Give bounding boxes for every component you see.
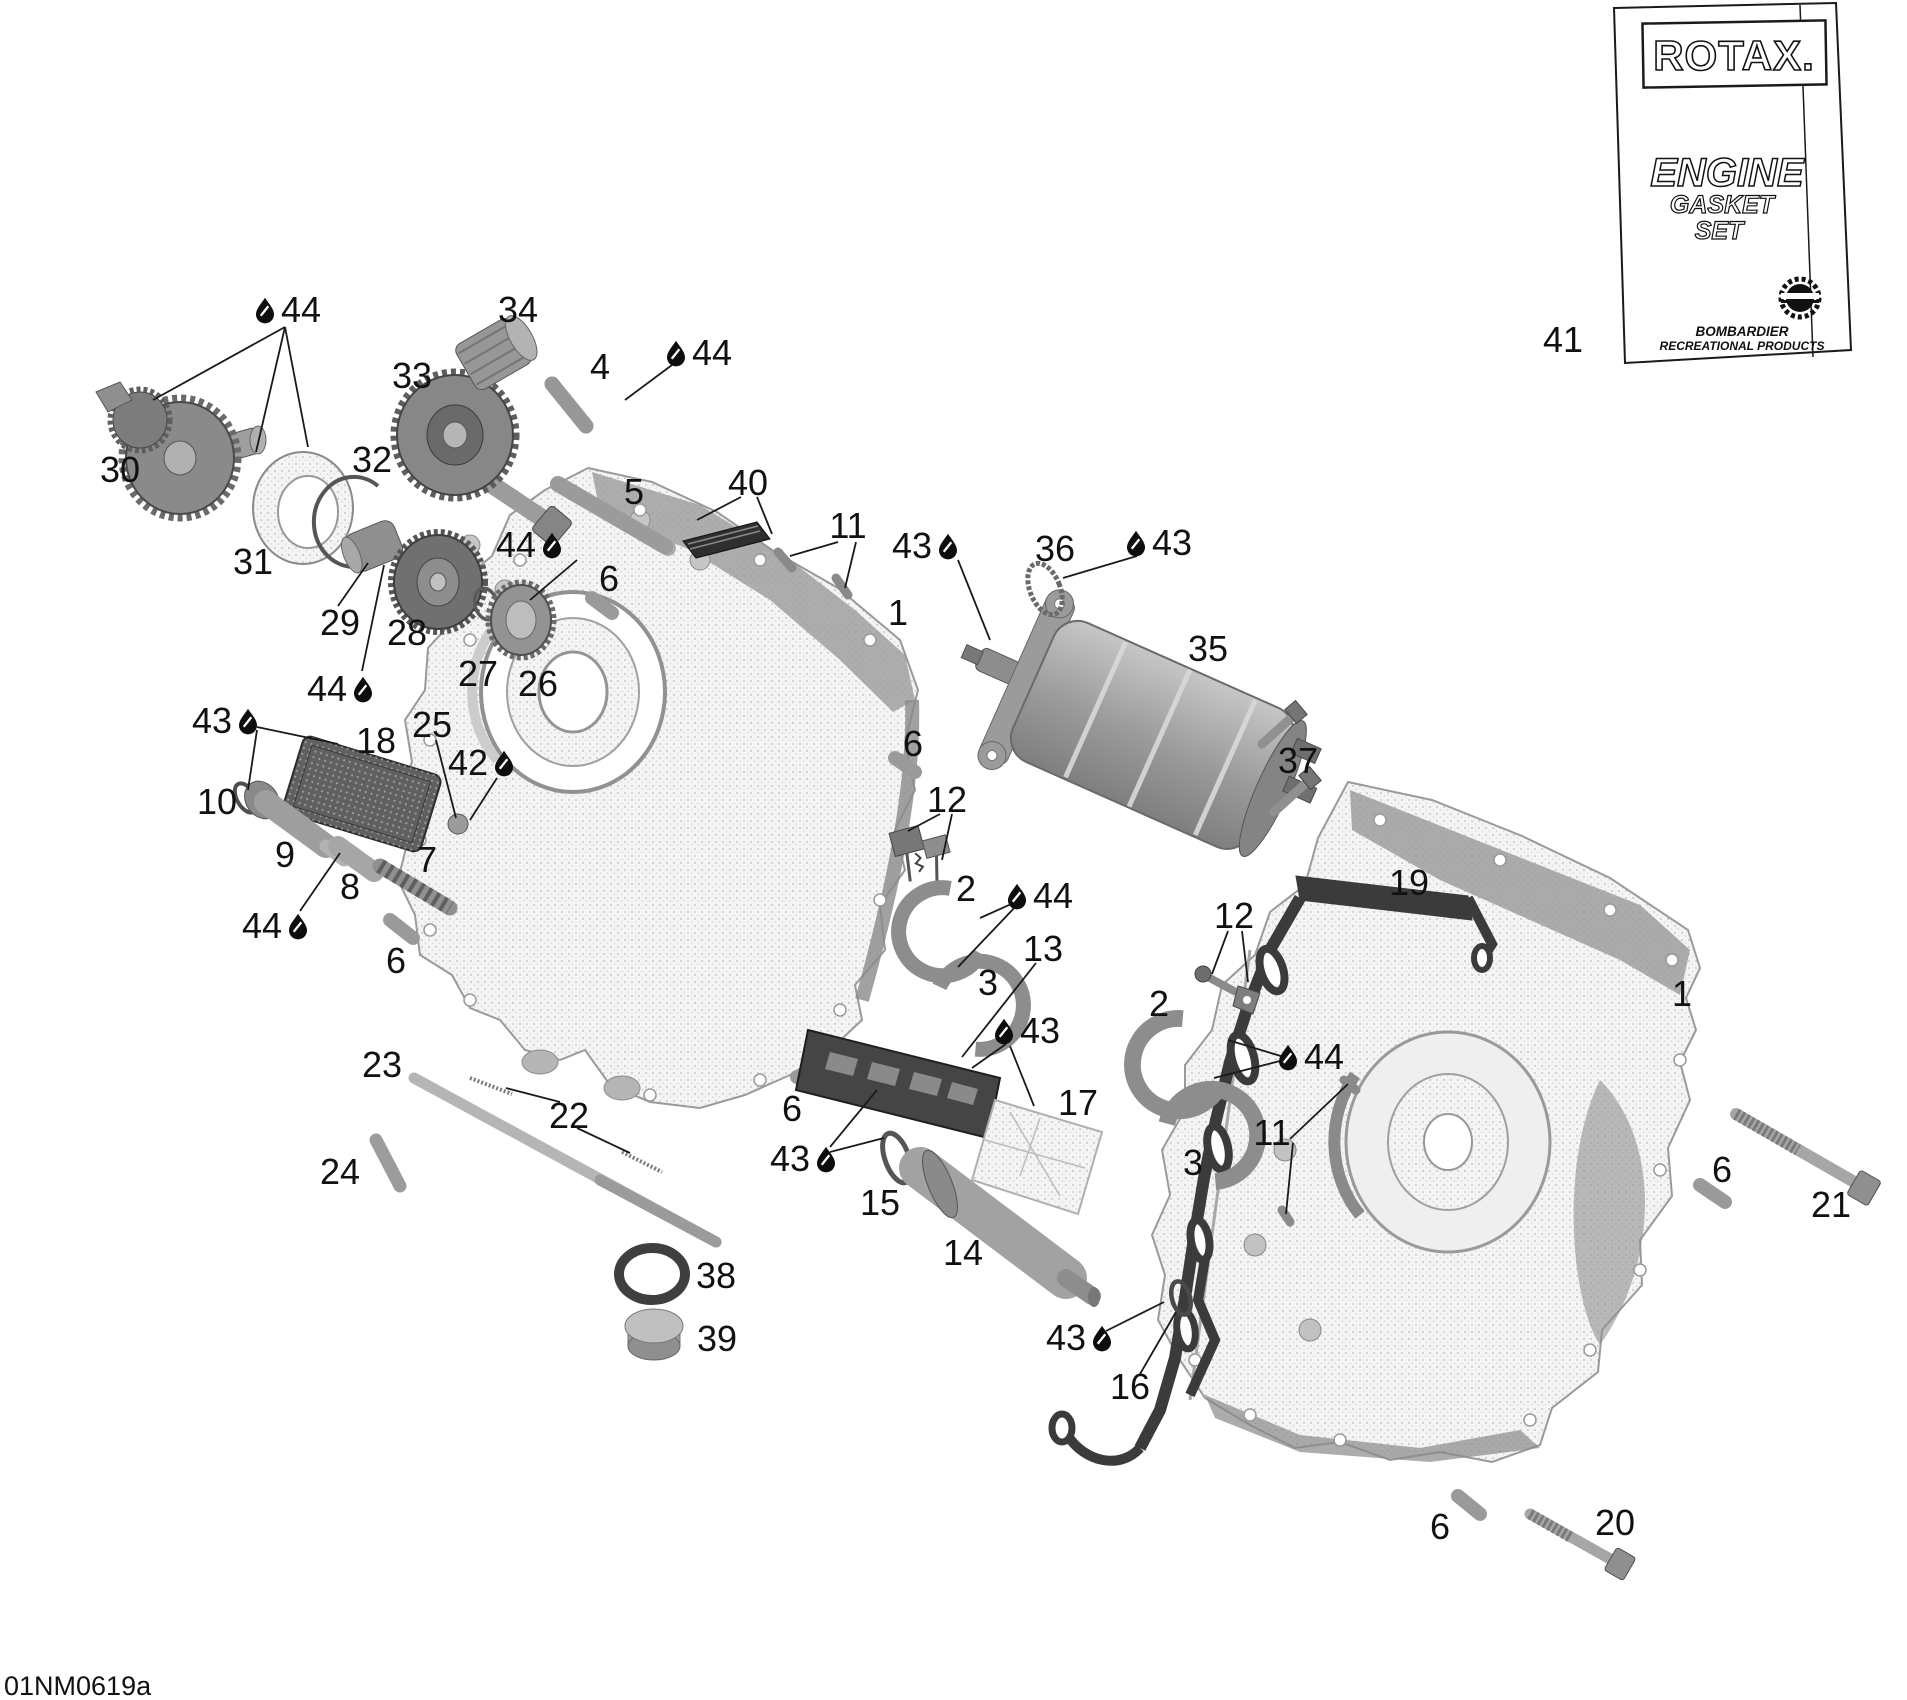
part-callout-12: 12	[1214, 895, 1254, 936]
part-callout-6: 6	[1712, 1149, 1732, 1190]
intermediate-gear	[394, 372, 573, 547]
part-callout-19: 19	[1389, 862, 1429, 903]
part-callout-43: 43	[1020, 1010, 1060, 1051]
part-callout-1: 1	[888, 592, 908, 633]
oil-drop-icon	[995, 1019, 1013, 1045]
part-callout-33: 33	[392, 355, 432, 396]
part-callout-3: 3	[1183, 1142, 1203, 1183]
part-callout-7: 7	[417, 839, 437, 880]
diagram-canvas: 4434444333032315404461143364313529282726…	[0, 0, 1907, 1700]
part-callout-4: 4	[590, 346, 610, 387]
dowel-pin-4	[552, 384, 586, 426]
part-callout-2: 2	[956, 868, 976, 909]
part-callout-23: 23	[362, 1044, 402, 1085]
part-callout-44: 44	[496, 524, 536, 565]
manufacturer-line2: RECREATIONAL PRODUCTS	[1660, 339, 1825, 353]
part-callout-15: 15	[860, 1182, 900, 1223]
part-callout-24: 24	[320, 1151, 360, 1192]
part-callout-44: 44	[307, 668, 347, 709]
part-callout-9: 9	[275, 834, 295, 875]
brand-logo-text: ROTAX.	[1653, 32, 1815, 79]
plug-25	[448, 814, 468, 834]
part-callout-28: 28	[387, 612, 427, 653]
part-callout-42: 42	[448, 742, 488, 783]
part-callout-44: 44	[692, 332, 732, 373]
part-callout-14: 14	[943, 1232, 983, 1273]
part-callout-21: 21	[1811, 1184, 1851, 1225]
part-callout-43: 43	[770, 1138, 810, 1179]
part-callout-22: 22	[549, 1095, 589, 1136]
part-callout-13: 13	[1023, 928, 1063, 969]
part-callout-35: 35	[1188, 628, 1228, 669]
part-callout-40: 40	[728, 462, 768, 503]
product-title-line3: SET	[1695, 217, 1746, 245]
part-callout-41: 41	[1543, 319, 1583, 360]
exploded-parts-diagram: 4434444333032315404461143364313529282726…	[0, 0, 1907, 1700]
part-callout-6: 6	[386, 940, 406, 981]
oil-drop-icon	[1127, 531, 1145, 557]
part-callout-39: 39	[697, 1318, 737, 1359]
part-callout-38: 38	[696, 1255, 736, 1296]
part-callout-16: 16	[1110, 1366, 1150, 1407]
part-callout-5: 5	[624, 471, 644, 512]
part-callout-6: 6	[782, 1088, 802, 1129]
oil-drop-icon	[667, 341, 685, 367]
oil-drop-icon	[256, 298, 274, 324]
part-callout-10: 10	[197, 781, 237, 822]
part-callout-27: 27	[458, 653, 498, 694]
part-callout-43: 43	[892, 525, 932, 566]
part-callout-6: 6	[903, 723, 923, 764]
part-callout-3: 3	[978, 962, 998, 1003]
part-callout-20: 20	[1595, 1502, 1635, 1543]
part-callout-43: 43	[1152, 522, 1192, 563]
part-callout-2: 2	[1149, 983, 1169, 1024]
product-title-line1: ENGINE	[1650, 151, 1805, 195]
part-callout-18: 18	[356, 720, 396, 761]
oil-drop-icon	[289, 914, 307, 940]
case-bolt-21	[1736, 1114, 1881, 1206]
part-callout-6: 6	[1430, 1506, 1450, 1547]
part-callout-32: 32	[352, 439, 392, 480]
part-callout-12: 12	[927, 779, 967, 820]
part-callout-37: 37	[1278, 740, 1318, 781]
part-callout-25: 25	[412, 704, 452, 745]
oil-drop-icon	[1008, 884, 1026, 910]
part-callout-43: 43	[1046, 1317, 1086, 1358]
oil-drop-icon	[354, 677, 372, 703]
part-callout-17: 17	[1058, 1082, 1098, 1123]
manufacturer-line1: BOMBARDIER	[1696, 324, 1789, 339]
diagram-code: 01NM0619a	[4, 1671, 152, 1700]
part-callout-43: 43	[192, 700, 232, 741]
part-callout-36: 36	[1035, 528, 1075, 569]
part-callout-6: 6	[599, 558, 619, 599]
part-callout-44: 44	[281, 289, 321, 330]
part-callout-26: 26	[518, 663, 558, 704]
o-ring-38	[619, 1248, 685, 1300]
part-callout-29: 29	[320, 602, 360, 643]
part-callout-44: 44	[1033, 875, 1073, 916]
gasket-kit-package: ROTAX. ENGINE GASKET SET BOMBARDIER RECR…	[1614, 3, 1851, 363]
oil-drop-icon	[939, 534, 957, 560]
pin-24	[376, 1140, 400, 1186]
part-callout-44: 44	[1304, 1036, 1344, 1077]
part-callout-34: 34	[498, 289, 538, 330]
part-callout-31: 31	[233, 541, 273, 582]
part-callout-11: 11	[1253, 1112, 1290, 1153]
part-callout-8: 8	[340, 866, 360, 907]
part-callout-44: 44	[242, 905, 282, 946]
part-callout-30: 30	[100, 449, 140, 490]
part-callout-1: 1	[1672, 973, 1692, 1014]
oil-drop-icon	[239, 709, 257, 735]
part-callout-11: 11	[829, 505, 866, 546]
plug-39	[625, 1309, 683, 1360]
product-title-line2: GASKET	[1670, 191, 1777, 219]
